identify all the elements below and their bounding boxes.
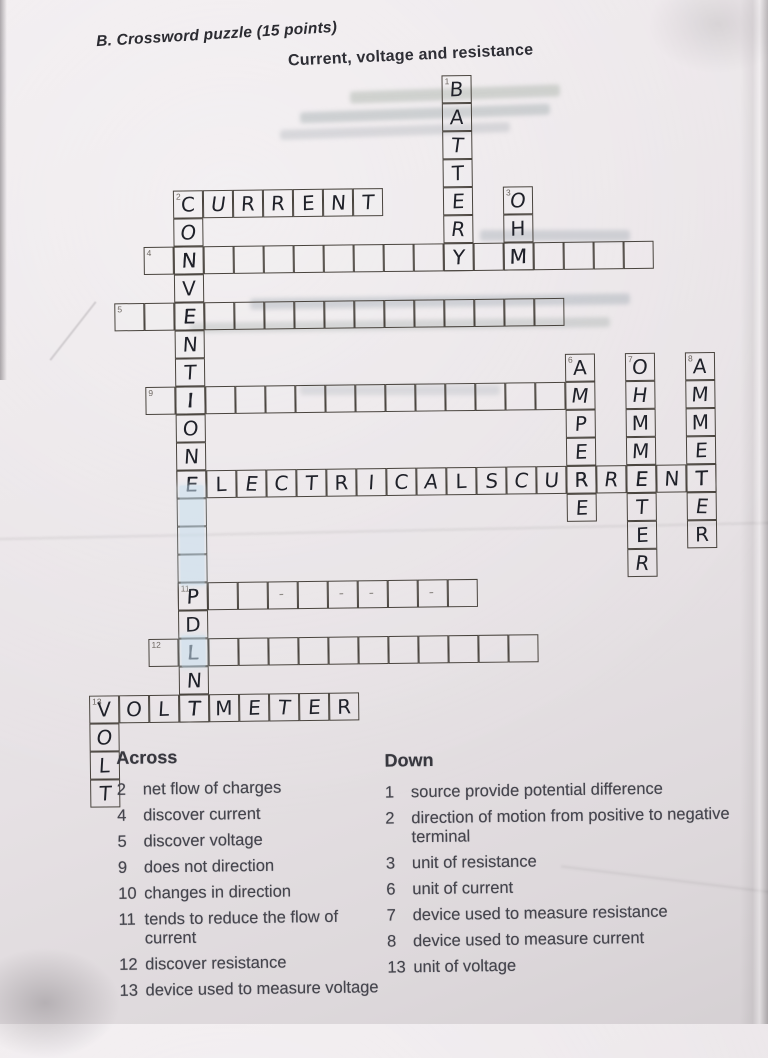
crossword-cell: E [236,470,266,498]
handwritten-letter: E [575,497,589,517]
crossword-cell [208,582,238,610]
clue-number: 8 [387,932,413,951]
handwritten-letter: E [302,193,315,214]
handwritten-letter: R [270,193,285,213]
crossword-cell [388,636,418,664]
crossword-cell: R [233,190,263,218]
crossword-cell: I [175,386,205,414]
crossword-cell: H [503,214,533,242]
across-clue-item: 4discover current [117,803,389,826]
clue-number: 4 [117,807,143,826]
crossword-cell: S [476,467,506,495]
crossword-cell [418,635,448,663]
down-clue-item: 1source provide potential difference [385,778,757,802]
grid-clue-number: 12 [151,641,161,650]
handwritten-letter: R [337,696,351,717]
across-clue-list: 2net flow of charges4discover current5di… [117,777,392,1001]
handwritten-letter: B [449,79,464,99]
crossword-cell [414,243,444,271]
across-clue-item: 5discover voltage [117,829,389,852]
crossword-cell: R [326,468,356,496]
crossword-cell [264,301,294,329]
crossword-cell [358,636,388,664]
crossword-cell: T [269,693,299,721]
handwritten-letter: O [632,357,649,377]
handwritten-letter: M [632,441,650,462]
crossword-cell: L [149,695,179,723]
crossword-cell: M [626,409,656,437]
handwritten-letter: A [423,471,439,491]
clue-number: 12 [119,956,145,975]
grid-clue-number: 6 [568,356,573,365]
crossword-cell [354,244,384,272]
handwritten-letter: O [509,190,527,210]
handwritten-letter: O [182,418,199,438]
clue-number: 13 [387,958,413,977]
across-clue-item: 13device used to measure voltage [119,978,391,1001]
clue-text: discover current [143,805,261,826]
crossword-cell: U [536,466,566,494]
crossword-cell [234,246,264,274]
crossword-cell [294,245,324,273]
handwritten-letter: M [632,412,649,433]
handwritten-letter: C [394,472,409,492]
crossword-cell: T [179,694,209,722]
handwritten-letter: E [247,697,261,717]
handwritten-letter: V [97,699,111,720]
faint-pencil-mark: - [429,584,434,600]
crossword-cell: Y [444,243,474,271]
down-clue-item: 7device used to measure resistance [387,901,759,925]
crossword-cell: E [299,693,329,721]
across-clue-item: 9does not direction [118,855,390,878]
crossword-cell: O [89,723,119,751]
crossword-cell [328,636,358,664]
crossword-cell: 1B [441,75,471,103]
crossword-cell [624,241,654,269]
crossword-cell: 6A [565,353,595,381]
down-clues-section: Down 1source provide potential differenc… [384,745,759,984]
crossword-cell: M [686,408,716,436]
crossword-cell: M [685,380,715,408]
crossword-cell [448,635,478,663]
crossword-cell: E [687,492,717,520]
crossword-cell [264,245,294,273]
handwritten-letter: A [450,107,465,127]
crossword-cell [564,241,594,269]
crossword-cell [324,300,354,328]
handwritten-letter: T [635,497,648,517]
handwritten-letter: O [179,222,197,242]
crossword-cell [204,246,234,274]
crossword-cell [414,299,444,327]
down-header: Down [384,745,756,771]
handwritten-letter: T [695,468,707,489]
crossword-cell: T [627,493,657,521]
handwritten-letter: M [692,412,709,433]
crossword-cell: E [686,436,716,464]
crossword-cell [384,300,414,328]
clue-number: 7 [387,906,413,925]
clue-number: 2 [385,809,412,847]
handwritten-letter: E [635,469,649,489]
handwritten-letter: T [99,783,112,803]
crossword-cell: A [416,467,446,495]
faint-pencil-mark: - [369,585,374,601]
handwritten-letter: M [570,386,590,406]
crossword-cell: E [567,493,597,521]
crossword-cell: R [329,692,359,720]
crossword-cell: 12 [148,639,178,667]
handwritten-letter: R [240,193,255,213]
crossword-cell: I [356,468,386,496]
handwritten-letter: O [95,727,113,747]
handwritten-letter: T [277,697,292,717]
crossword-cell: T [443,159,473,187]
crossword-cell [384,244,414,272]
clue-text: unit of voltage [413,957,516,977]
clue-text: does not direction [144,857,275,878]
crossword-cell: E [239,693,269,721]
handwritten-letter: I [186,390,195,410]
handwritten-letter: N [663,468,679,488]
handwritten-letter: L [99,755,111,775]
handwritten-letter: T [187,698,202,718]
handwritten-letter: I [368,472,375,492]
across-clues-section: Across 2net flow of charges4discover cur… [116,744,392,1008]
crossword-cell: M [565,381,595,409]
crossword-cell: R [263,189,293,217]
handwritten-letter: H [511,218,526,239]
handwritten-letter: T [450,135,465,155]
crossword-cell: E [627,521,657,549]
crossword-cell: A [442,103,472,131]
clue-text: device used to measure voltage [145,978,378,1000]
handwritten-letter: T [452,163,464,184]
crossword-cell [594,241,624,269]
handwritten-letter: E [244,474,259,494]
handwritten-letter: E [182,306,196,326]
handwritten-letter: V [182,278,196,299]
down-clue-item: 3unit of resistance [386,849,758,873]
handwritten-letter: D [185,614,200,635]
crossword-cell: M [209,694,239,722]
handwritten-letter: T [305,473,318,493]
across-clue-item: 10changes in direction [118,881,390,904]
crossword-cell [415,383,445,411]
crossword-cell: N [176,442,206,470]
handwritten-letter: R [695,524,709,545]
crossword-cell [298,581,328,609]
crossword-cell: 3O [503,186,533,214]
clue-text: device used to measure resistance [413,903,668,926]
handwritten-letter: A [573,357,587,378]
crossword-cell: 8A [685,352,715,380]
crossword-cell [385,384,415,412]
handwritten-letter: C [181,194,195,215]
crossword-cell [535,382,565,410]
handwritten-letter: P [574,413,587,433]
clue-text: discover voltage [143,831,262,852]
crossword-cell [208,638,238,666]
clue-number: 1 [385,783,411,802]
clue-text: unit of current [412,879,513,899]
crossword-cell [444,299,474,327]
clue-number: 13 [119,982,145,1001]
crossword-cell: N [656,464,686,492]
clue-text: device used to measure current [413,929,644,951]
crossword-cell: L [206,470,236,498]
clue-text: tends to reduce the flow of current [144,908,338,949]
clue-number: 3 [386,854,412,873]
grid-clue-number: 1 [445,77,450,86]
crossword-cell [324,244,354,272]
crossword-cell: E [566,437,596,465]
clue-number: 9 [118,859,144,878]
clue-number: 6 [386,880,412,899]
clue-text: source provide potential difference [411,780,663,803]
handwritten-letter: Y [452,247,465,267]
crossword-cell: N [175,330,205,358]
grid-clue-number: 8 [688,354,693,363]
crossword-cell: R [687,520,717,548]
handwritten-letter: L [456,471,467,492]
clue-number: 2 [117,781,143,800]
crossword-cell: T [353,188,383,216]
handwritten-letter: R [574,469,588,490]
grid-clue-number: 9 [148,389,153,398]
crossword-cell [534,298,564,326]
handwritten-letter: N [186,670,202,690]
crossword-cell: R [627,549,657,577]
handwritten-letter: N [181,250,197,270]
clue-text: changes in direction [144,882,291,903]
handwritten-letter: C [513,470,530,490]
handwritten-letter: R [603,469,620,489]
crossword-cell: E [443,187,473,215]
crossword-cell: T [296,469,326,497]
crossword-cell: C [386,468,416,496]
crossword-cell [534,242,564,270]
crossword-cell [144,303,174,331]
handwritten-letter: R [334,472,348,493]
crossword-cell [475,383,505,411]
crossword-cell: R [443,215,473,243]
clue-text: discover resistance [145,954,286,975]
faint-pencil-mark: - [339,586,344,602]
down-clue-item: 13unit of voltage [387,953,759,977]
correction-fluid-mark [181,635,205,667]
crossword-cell: N [323,188,353,216]
across-clue-item: 2net flow of charges [117,777,389,800]
crossword-cell: L [446,467,476,495]
across-clue-item: 11tends to reduce the flow of current [118,907,391,949]
handwritten-letter: E [694,440,708,460]
clue-text: unit of resistance [412,852,537,873]
crossword-cell: O [176,414,206,442]
crossword-cell [234,302,264,330]
handwritten-letter: S [484,471,498,491]
crossword-cell [238,637,268,665]
crossword-cell: 13V [89,695,119,723]
handwritten-letter: A [693,356,708,376]
crossword-cell [505,382,535,410]
down-clue-list: 1source provide potential difference2dir… [385,778,760,977]
crossword-cell: 11P [178,582,208,610]
crossword-cell [354,300,384,328]
handwritten-letter: C [274,473,289,493]
crossword-cell: 4 [144,247,174,275]
crossword-cell [388,580,418,608]
crossword-cell [445,383,475,411]
handwritten-letter: M [216,698,233,719]
crossword-cell [204,302,234,330]
handwritten-letter: R [634,553,651,573]
crossword-cell: T [175,358,205,386]
crossword-cell: V [174,274,204,302]
crossword-cell: O [173,218,203,246]
handwritten-letter: E [451,191,465,211]
handwritten-letter: T [183,362,196,382]
handwritten-letter: U [544,470,560,490]
crossword-cell: C [266,469,296,497]
crossword-cell: N [174,246,204,274]
crossword-cell: M [504,242,534,270]
crossword-cell [325,384,355,412]
handwritten-letter: H [632,385,650,405]
crossword-cell [235,386,265,414]
handwritten-letter: N [182,334,198,354]
crossword-cell: 5 [114,303,144,331]
clue-text: direction of motion from positive to neg… [411,805,730,847]
crossword-cell: 7O [625,353,655,381]
handwritten-letter: L [158,699,170,719]
handwritten-letter: E [694,496,709,516]
crossword-cell: U [203,190,233,218]
worksheet-photo: { "paper": { "section_label": "B. Crossw… [0,0,768,1024]
crossword-cell [508,634,538,662]
crossword-cell [474,299,504,327]
crossword-cell [298,637,328,665]
handwritten-letter: P [186,586,199,606]
handwritten-letter: R [450,219,467,239]
across-header: Across [116,744,388,769]
crossword-cell: R [566,465,596,493]
crossword-cell [265,385,295,413]
crossword-cell: C [506,466,536,494]
crossword-cell [478,635,508,663]
crossword-cell [268,637,298,665]
crossword-cell [355,384,385,412]
correction-fluid-mark [179,486,204,586]
handwritten-letter: E [636,525,649,546]
crossword-cell [205,386,235,414]
clue-text: net flow of charges [143,779,282,800]
crossword-cell: T [442,131,472,159]
crossword-cell: R [596,465,626,493]
handwritten-letter: M [510,246,527,267]
crossword-cell: T [686,464,716,492]
crossword-cell [295,385,325,413]
crossword-cell [294,301,324,329]
crossword-cell [448,579,478,607]
crossword-cell: D [178,610,208,638]
handwritten-letter: U [209,194,226,214]
clue-number: 5 [117,833,143,852]
clue-number: 11 [118,911,145,949]
faint-pencil-mark: - [279,586,284,602]
handwritten-letter: E [574,441,588,461]
crossword-cell: 2C [173,190,203,218]
grid-clue-number: 5 [117,305,122,314]
across-clue-item: 12discover resistance [119,952,391,975]
crossword-cell: O [119,695,149,723]
handwritten-letter: E [307,697,321,717]
crossword-cell: E [174,302,204,330]
handwritten-letter: M [691,384,709,405]
down-clue-item: 2direction of motion from positive to ne… [385,804,757,847]
crossword-cell: 9 [145,387,175,415]
crossword-cell: E [293,189,323,217]
handwritten-letter: L [216,474,227,495]
handwritten-letter: N [330,192,346,212]
crossword-cell: H [625,381,655,409]
down-clue-item: 8device used to measure current [387,927,759,951]
crossword-cell: E [626,465,656,493]
handwritten-letter: N [183,446,199,466]
crossword-cell [238,581,268,609]
crossword-cell: M [626,437,656,465]
crossword-cell: P [566,409,596,437]
down-clue-item: 6unit of current [386,875,758,899]
handwritten-letter: O [126,699,143,719]
crossword-cell [504,298,534,326]
crossword-cell [474,243,504,271]
grid-clue-number: 4 [147,249,152,258]
crossword-cell: N [179,666,209,694]
handwritten-letter: T [361,192,374,212]
clue-number: 10 [118,885,144,904]
